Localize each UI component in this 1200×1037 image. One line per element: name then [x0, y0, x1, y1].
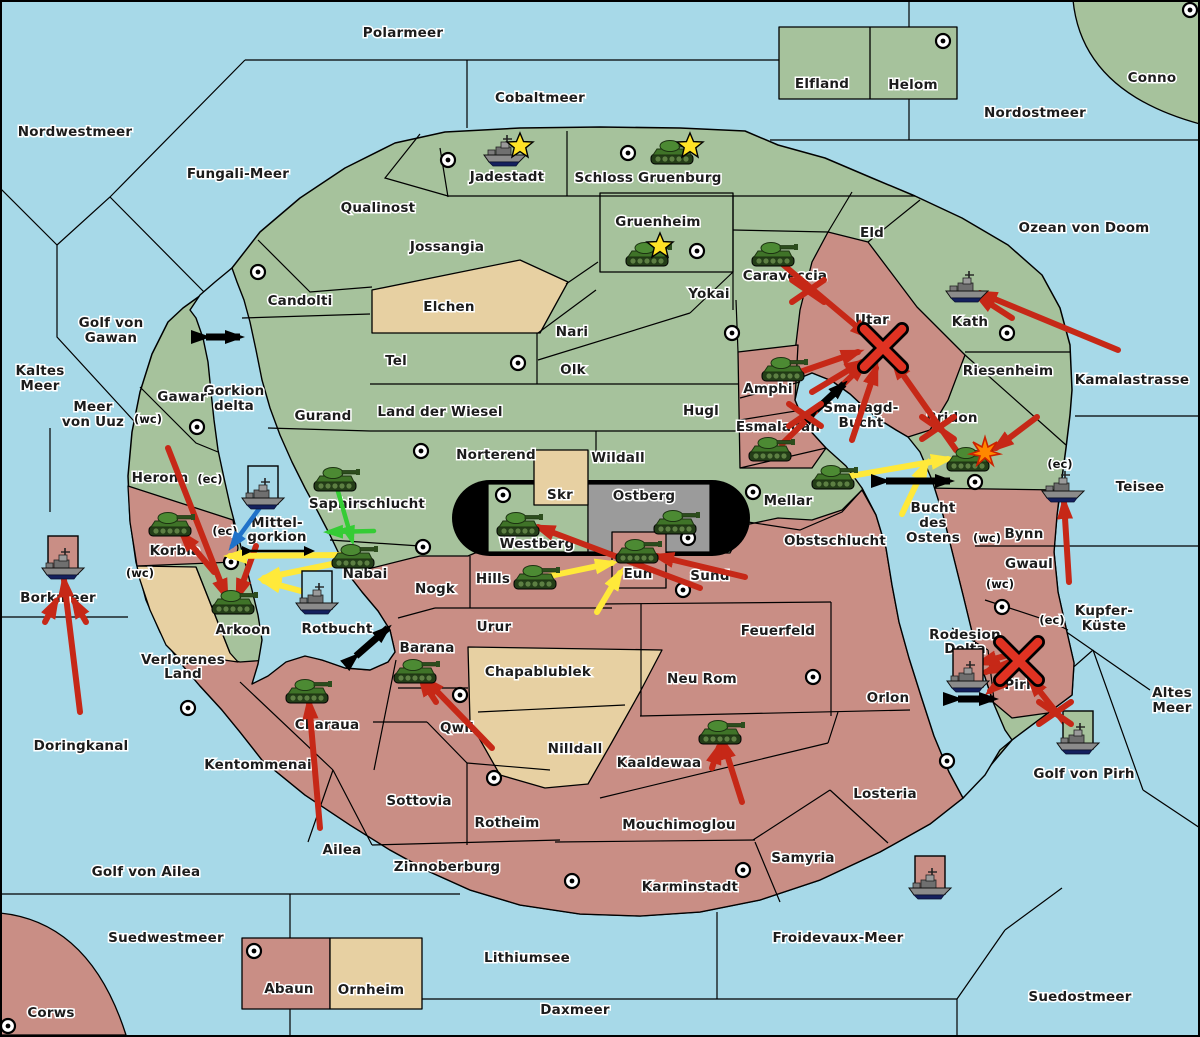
land-label: Neu Rom — [667, 671, 737, 687]
supply-center-icon — [936, 34, 950, 48]
land-label: Hugl — [683, 403, 719, 419]
sea-label: Polarmeer — [363, 25, 444, 41]
supply-center-icon — [621, 146, 635, 160]
land-label: Nari — [556, 324, 589, 340]
coast-tag: (wc) — [986, 577, 1014, 591]
supply-center-icon — [725, 326, 739, 340]
coast-tag: (wc) — [134, 412, 162, 426]
land-label: Charaua — [295, 717, 360, 733]
land-label: Gwaul — [1005, 556, 1053, 572]
sea-label: Froidevaux-Meer — [773, 930, 904, 946]
land-label: Kentommenai — [204, 757, 312, 773]
supply-center-icon — [968, 475, 982, 489]
land-label: Helom — [888, 77, 937, 93]
region-ornheim-box — [330, 938, 422, 1009]
supply-center-icon — [496, 488, 510, 502]
sea-label: Lithiumsee — [484, 950, 570, 966]
land-label: Jadestadt — [469, 169, 545, 185]
sea-label: Kamalastrasse — [1075, 372, 1190, 388]
land-label: Qualinost — [341, 200, 416, 216]
sea-label: Cobaltmeer — [495, 90, 585, 106]
supply-center-icon — [251, 265, 265, 279]
land-label: Caraveccia — [743, 268, 827, 284]
land-label: Candolti — [268, 293, 333, 309]
sea-label: KaltesMeer — [15, 363, 64, 394]
ship-unit[interactable] — [42, 536, 84, 579]
supply-center-icon — [511, 356, 525, 370]
supply-center-icon — [1, 1019, 15, 1033]
land-label: Tel — [385, 353, 407, 369]
land-label: Karminstadt — [642, 879, 739, 895]
move-arrow-green — [329, 531, 374, 532]
supply-center-icon — [746, 485, 760, 499]
sea-label: Suedostmeer — [1028, 989, 1131, 1005]
sea-label: Nordostmeer — [984, 105, 1086, 121]
supply-center-icon — [416, 540, 430, 554]
land-label: Obstschlucht — [784, 533, 886, 549]
sea-label: Golf von Pirh — [1033, 766, 1134, 782]
land-label: Yokai — [687, 286, 730, 302]
land-label: Losteria — [853, 786, 917, 802]
sea-label: Suedwestmeer — [108, 930, 224, 946]
sea-label: Daxmeer — [540, 1002, 610, 1018]
land-label: Gruenheim — [615, 214, 700, 230]
land-label: Mouchimoglou — [622, 817, 735, 833]
move-arrow-yellow — [230, 555, 344, 556]
land-label: Saphirschlucht — [309, 496, 425, 512]
land-label: Eld — [860, 225, 884, 241]
sea-label: Borkmeer — [20, 590, 96, 606]
land-label: Norterend — [456, 447, 536, 463]
land-label: Gurand — [295, 408, 352, 424]
land-label: Kaaldewaa — [617, 755, 702, 771]
supply-center-icon — [487, 771, 501, 785]
coast-tag: (ec) — [1047, 457, 1072, 471]
coast-tag: (wc) — [126, 566, 154, 580]
supply-center-icon — [565, 874, 579, 888]
sea-label: AltesMeer — [1152, 685, 1192, 716]
land-label: Schloss Gruenburg — [574, 170, 721, 186]
land-label: Ailea — [323, 842, 362, 858]
land-label: Mittel-gorkion — [247, 515, 307, 545]
land-label: Mellar — [764, 493, 813, 509]
sea-label: Golf vonGawan — [79, 315, 144, 346]
land-label: Gawar — [157, 389, 207, 405]
land-label: Nilldall — [548, 741, 603, 757]
supply-center-icon — [1183, 3, 1197, 17]
land-label: Abaun — [264, 981, 313, 997]
supply-center-icon — [806, 670, 820, 684]
sea-label: Rotbucht — [301, 621, 372, 637]
coast-tag: (ec) — [197, 472, 222, 486]
supply-center-icon — [247, 944, 261, 958]
land-label: Zinnoberburg — [394, 859, 500, 875]
land-label: Bynn — [1004, 526, 1043, 542]
sea-label: Corws — [27, 1005, 74, 1021]
ship-unit[interactable] — [947, 649, 989, 692]
supply-center-icon — [1000, 326, 1014, 340]
land-label: Amphi — [743, 381, 792, 397]
land-label: Samyria — [771, 850, 835, 866]
sea-label: Teisee — [1116, 479, 1165, 495]
land-label: Ostberg — [613, 488, 676, 504]
supply-center-icon — [736, 863, 750, 877]
land-label: Ornheim — [338, 982, 405, 998]
land-label: Orlon — [867, 690, 910, 706]
land-label: Elfland — [795, 76, 849, 92]
land-label: Skr — [547, 487, 573, 503]
land-label: Elchen — [423, 299, 474, 315]
supply-center-icon — [190, 420, 204, 434]
coast-tag: (ec) — [1039, 613, 1064, 627]
land-label: Hills — [476, 571, 510, 587]
strategy-game-map[interactable]: PolarmeerCobaltmeerNordostmeerNordwestme… — [0, 0, 1200, 1037]
coast-tag: (ec) — [212, 524, 237, 538]
sea-label: Fungali-Meer — [187, 166, 289, 182]
ship-unit[interactable] — [296, 571, 338, 614]
land-label: Chapablublek — [485, 664, 592, 680]
land-label: Land der Wiesel — [377, 404, 502, 420]
supply-center-icon — [181, 701, 195, 715]
land-label: Olk — [560, 362, 587, 378]
land-label: Nogk — [415, 581, 456, 597]
game-map-stage: PolarmeerCobaltmeerNordostmeerNordwestme… — [0, 0, 1200, 1037]
land-label: Arkoon — [215, 622, 270, 638]
supply-center-icon — [690, 244, 704, 258]
land-label: Rotheim — [475, 815, 540, 831]
supply-center-icon — [441, 153, 455, 167]
supply-center-icon — [995, 600, 1009, 614]
land-label: Jossangia — [409, 239, 484, 255]
sea-label: Golf von Ailea — [92, 864, 201, 880]
land-label: Sottovia — [386, 793, 451, 809]
supply-center-icon — [414, 444, 428, 458]
land-label: Wildall — [591, 450, 645, 466]
sea-label: Nordwestmeer — [18, 124, 133, 140]
coast-tag: (wc) — [973, 531, 1001, 545]
land-label: Barana — [399, 640, 454, 656]
sea-label: Doringkanal — [34, 738, 129, 754]
land-label: Kath — [952, 314, 988, 330]
supply-center-icon — [453, 688, 467, 702]
land-label: Feuerfeld — [741, 623, 815, 639]
ship-unit[interactable] — [909, 856, 951, 899]
land-label: Urur — [477, 619, 512, 635]
land-label: Conno — [1128, 70, 1177, 86]
sea-label: Kupfer-Küste — [1075, 603, 1133, 634]
sea-label: Ozean von Doom — [1019, 220, 1150, 236]
supply-center-icon — [940, 754, 954, 768]
land-label: Riesenheim — [963, 363, 1053, 379]
ship-unit[interactable] — [242, 466, 284, 509]
